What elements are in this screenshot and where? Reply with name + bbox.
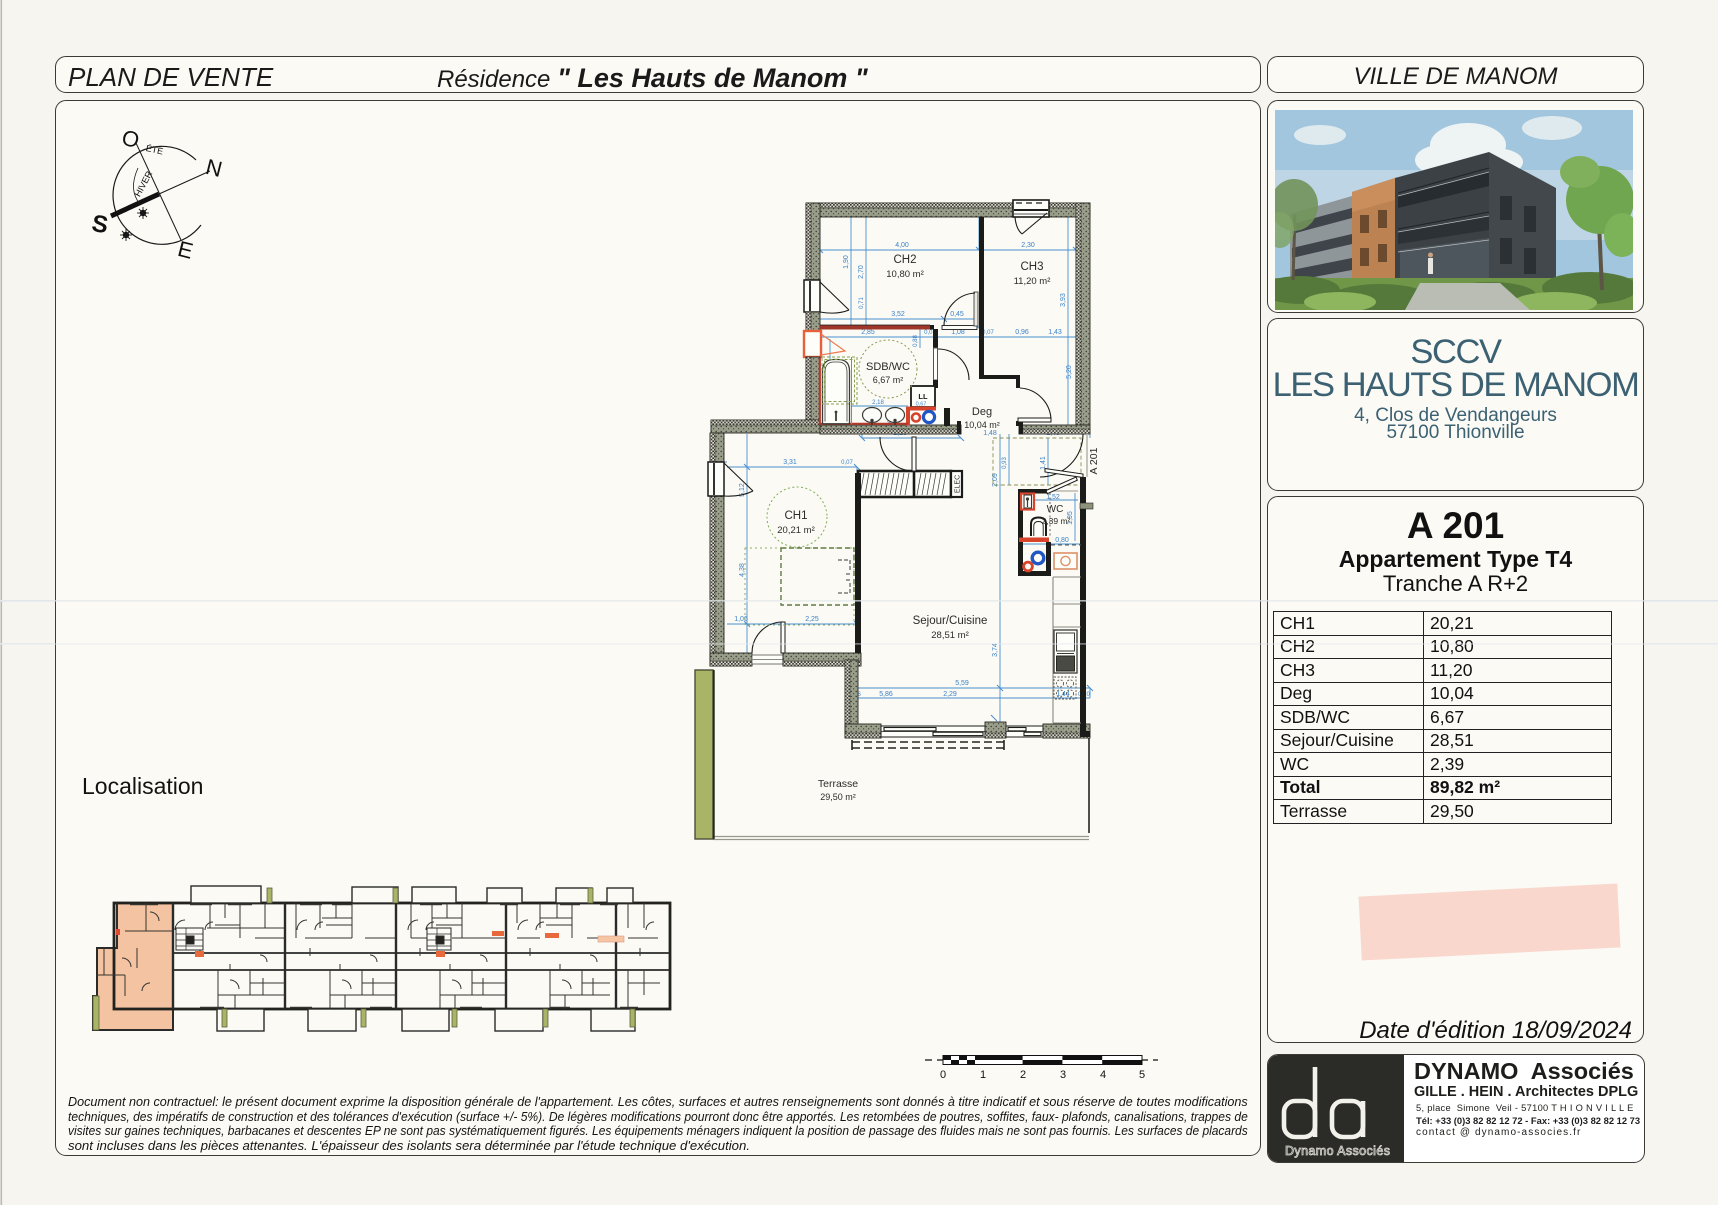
svg-text:0,45: 0,45 [950,311,964,318]
svg-text:E: E [175,236,195,264]
svg-text:5,86: 5,86 [879,691,893,698]
svg-text:5: 5 [1139,1069,1145,1081]
svg-text:CH3: CH3 [1020,261,1043,273]
svg-text:0,88: 0,88 [913,335,919,347]
svg-text:2,39 m²: 2,39 m² [1042,516,1071,526]
svg-text:1,43: 1,43 [1048,329,1062,336]
svg-text:2,29: 2,29 [943,691,957,698]
svg-text:6,67 m²: 6,67 m² [873,375,904,385]
svg-text:CH1: CH1 [784,510,807,522]
svg-text:2,18: 2,18 [872,400,884,406]
svg-text:1,06: 1,06 [734,616,748,623]
svg-text:20,21 m²: 20,21 m² [777,525,815,536]
svg-text:1,52: 1,52 [1046,494,1060,501]
svg-text:3,93: 3,93 [1060,293,1067,307]
svg-text:N: N [203,154,224,182]
svg-text:1,48: 1,48 [983,430,997,437]
svg-text:A 201: A 201 [1088,447,1100,474]
svg-text:LL: LL [918,392,928,401]
svg-text:3: 3 [1060,1069,1066,1081]
svg-text:0,07: 0,07 [841,460,853,466]
svg-text:5,59: 5,59 [955,680,969,687]
svg-text:1: 1 [980,1069,986,1081]
svg-text:10,04 m²: 10,04 m² [964,420,1000,430]
svg-text:SDB/WC: SDB/WC [866,361,910,373]
svg-text:0,93: 0,93 [1002,457,1008,469]
svg-text:CH2: CH2 [893,254,916,266]
svg-text:1,08: 1,08 [951,329,965,336]
svg-text:2: 2 [1020,1069,1026,1081]
svg-text:0,71: 0,71 [859,297,865,309]
svg-text:4: 4 [1100,1069,1106,1081]
svg-text:0,07: 0,07 [982,330,994,336]
svg-text:Terrasse: Terrasse [818,778,858,790]
svg-text:1,41: 1,41 [1040,456,1047,470]
svg-text:2,30: 2,30 [1021,242,1035,249]
svg-text:2,70: 2,70 [858,265,865,279]
svg-text:4,00: 4,00 [895,242,909,249]
svg-text:Deg: Deg [972,406,992,418]
svg-text:10,80 m²: 10,80 m² [886,269,924,280]
svg-text:ELEC: ELEC [955,475,962,493]
svg-text:0,80: 0,80 [1055,537,1069,544]
svg-text:Sejour/Cuisine: Sejour/Cuisine [913,615,988,627]
svg-text:2,25: 2,25 [805,616,819,623]
svg-text:WC: WC [1047,504,1064,515]
svg-text:1,90: 1,90 [843,255,850,269]
svg-text:0: 0 [940,1069,946,1081]
svg-text:ÉTÉ: ÉTÉ [145,143,164,156]
svg-text:3,31: 3,31 [783,459,797,466]
svg-text:2,85: 2,85 [861,329,875,336]
svg-text:28,51 m²: 28,51 m² [931,630,969,641]
svg-text:5,20: 5,20 [1066,365,1073,379]
svg-text:S: S [90,210,110,239]
svg-text:3,74: 3,74 [992,643,999,657]
svg-text:29,50 m²: 29,50 m² [820,792,856,802]
svg-text:11,20 m²: 11,20 m² [1014,276,1051,287]
svg-text:3,52: 3,52 [891,311,905,318]
svg-text:0,96: 0,96 [1015,329,1029,336]
